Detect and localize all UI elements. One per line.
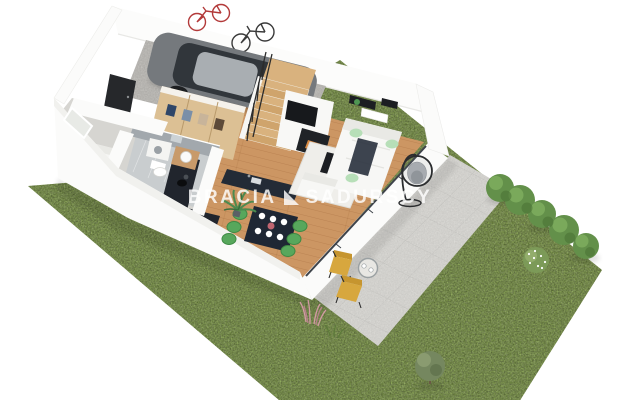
dining-chair: [287, 234, 301, 245]
dining-chair: [222, 234, 236, 245]
floor-plan-render: BRACIA SADURSCY: [0, 0, 620, 400]
flowering-bush: [523, 247, 549, 273]
sofa-pillow: [350, 129, 363, 138]
dining-chair: [227, 222, 241, 233]
sofa-pillow: [346, 174, 359, 183]
round-sink: [181, 152, 192, 163]
shelf-plant-icon: [354, 99, 360, 105]
dining-chair: [281, 246, 295, 257]
dining-chair: [293, 221, 307, 232]
patio-side-table: [359, 259, 378, 278]
sofa-pillow: [386, 140, 399, 149]
cooktop: [177, 180, 187, 187]
small-tree: [415, 351, 445, 390]
table-bowl: [268, 223, 275, 230]
scene-svg: [0, 0, 620, 400]
